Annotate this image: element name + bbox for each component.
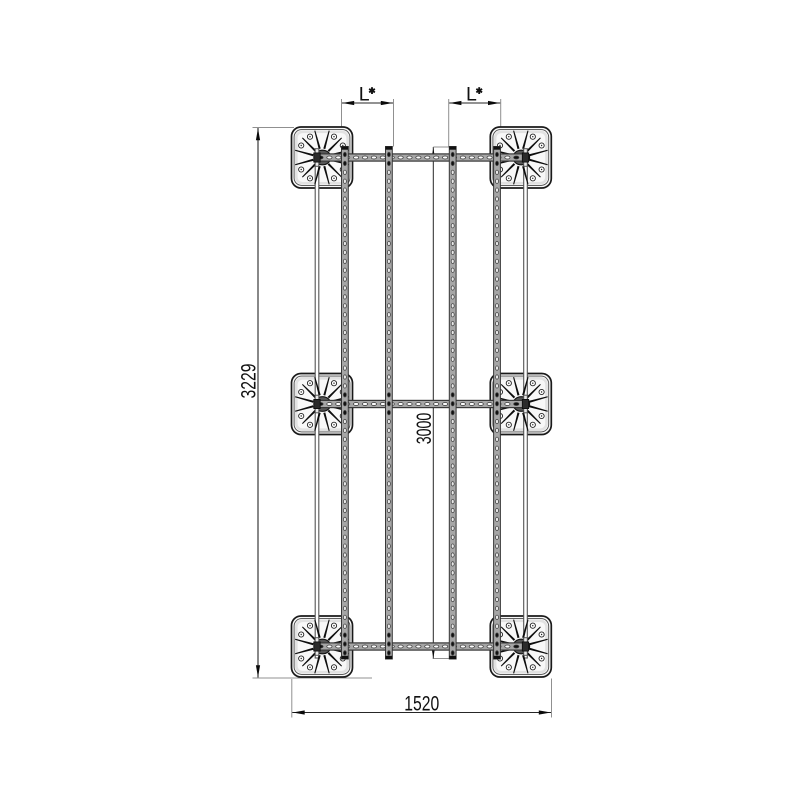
svg-text:L: L <box>359 83 370 105</box>
svg-text:3229: 3229 <box>237 364 261 399</box>
svg-text:L: L <box>466 83 477 105</box>
svg-text:1520: 1520 <box>404 692 439 716</box>
svg-text:3000: 3000 <box>412 413 436 445</box>
